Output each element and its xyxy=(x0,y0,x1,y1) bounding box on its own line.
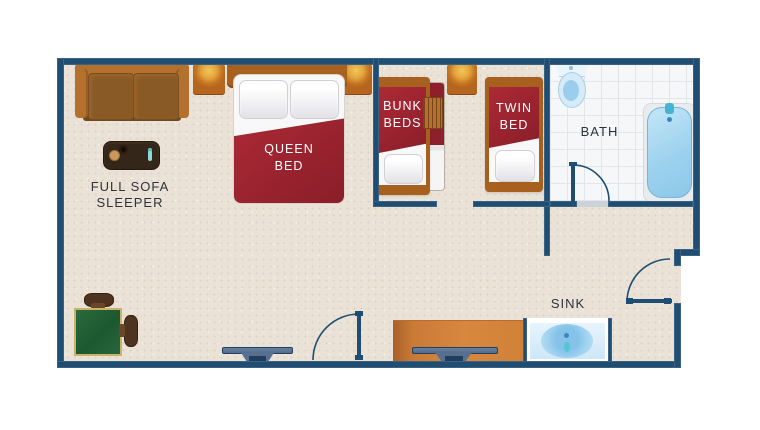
tv-screen xyxy=(222,347,293,354)
pillow-icon xyxy=(384,154,423,184)
sofa-cushion-right xyxy=(133,73,179,120)
bath-door-leaf xyxy=(571,164,575,202)
bath-door-cap xyxy=(569,162,577,166)
pillow-icon xyxy=(495,150,535,182)
queen-bed-icon: QUEEN BED xyxy=(233,74,345,204)
tv-screen xyxy=(412,347,498,354)
mug-icon xyxy=(109,150,120,161)
wall-right-lower xyxy=(674,303,681,368)
connecting-door-cap xyxy=(355,355,363,360)
tv-icon xyxy=(412,347,498,361)
pillow-icon xyxy=(239,80,288,119)
sofa-sleeper-icon xyxy=(75,64,189,122)
sink-label: SINK xyxy=(538,296,598,312)
wall-right-upper xyxy=(693,58,700,256)
twin-bed-label: TWIN BED xyxy=(489,100,539,134)
bunk-beds-label: BUNK BEDS xyxy=(379,98,426,132)
chair-icon xyxy=(124,315,138,347)
bathtub-faucet xyxy=(665,103,674,114)
toilet-bowl-inner xyxy=(563,80,579,101)
sink-side-wall xyxy=(523,318,527,362)
sink-basin-icon xyxy=(541,324,593,358)
wall-bath-bottom-right xyxy=(608,201,693,207)
pillow-icon xyxy=(290,80,339,119)
connecting-door-cap xyxy=(355,311,363,316)
nightstand-lamp-icon xyxy=(193,64,225,95)
entry-door-cap xyxy=(626,298,633,304)
wall-bath-divider xyxy=(544,58,550,256)
tv-icon xyxy=(222,347,293,361)
dining-table-icon xyxy=(74,308,122,356)
coffee-table-icon xyxy=(103,141,160,170)
entry-door-cap xyxy=(664,298,671,304)
wall-twinroom-bottom xyxy=(473,201,550,207)
sofa-arm-left xyxy=(75,69,88,118)
bunk-ladder-icon xyxy=(423,97,443,129)
bathtub-icon xyxy=(643,103,696,202)
sink-side-wall xyxy=(608,318,612,362)
sink-faucet-dot xyxy=(564,333,569,338)
toilet-icon xyxy=(554,61,588,109)
bathtub-drain xyxy=(667,117,672,122)
bath-label: BATH xyxy=(572,124,627,140)
wall-bunkroom-bottom xyxy=(373,201,437,207)
remote-icon xyxy=(148,148,152,161)
nightstand-lamp-icon xyxy=(447,64,477,95)
ashtray-icon xyxy=(119,145,128,154)
connecting-door-leaf xyxy=(357,313,361,360)
sink-vanity xyxy=(523,318,612,362)
sofa-cushion-left xyxy=(88,73,134,120)
wall-left xyxy=(57,58,64,368)
queen-bed-label: QUEEN BED xyxy=(259,141,319,175)
sofa-area-label: FULL SOFA SLEEPER xyxy=(76,179,184,211)
toilet-tank-button xyxy=(569,66,573,70)
bath-door-threshold xyxy=(577,201,608,207)
floor-plan: FULL SOFA SLEEPER QUEEN BED BUNK BEDS TW… xyxy=(0,0,760,430)
wall-right-stub xyxy=(674,249,681,266)
chair-seat xyxy=(119,324,125,337)
wall-bedroom-divider xyxy=(373,58,379,207)
wall-bottom xyxy=(57,361,681,368)
